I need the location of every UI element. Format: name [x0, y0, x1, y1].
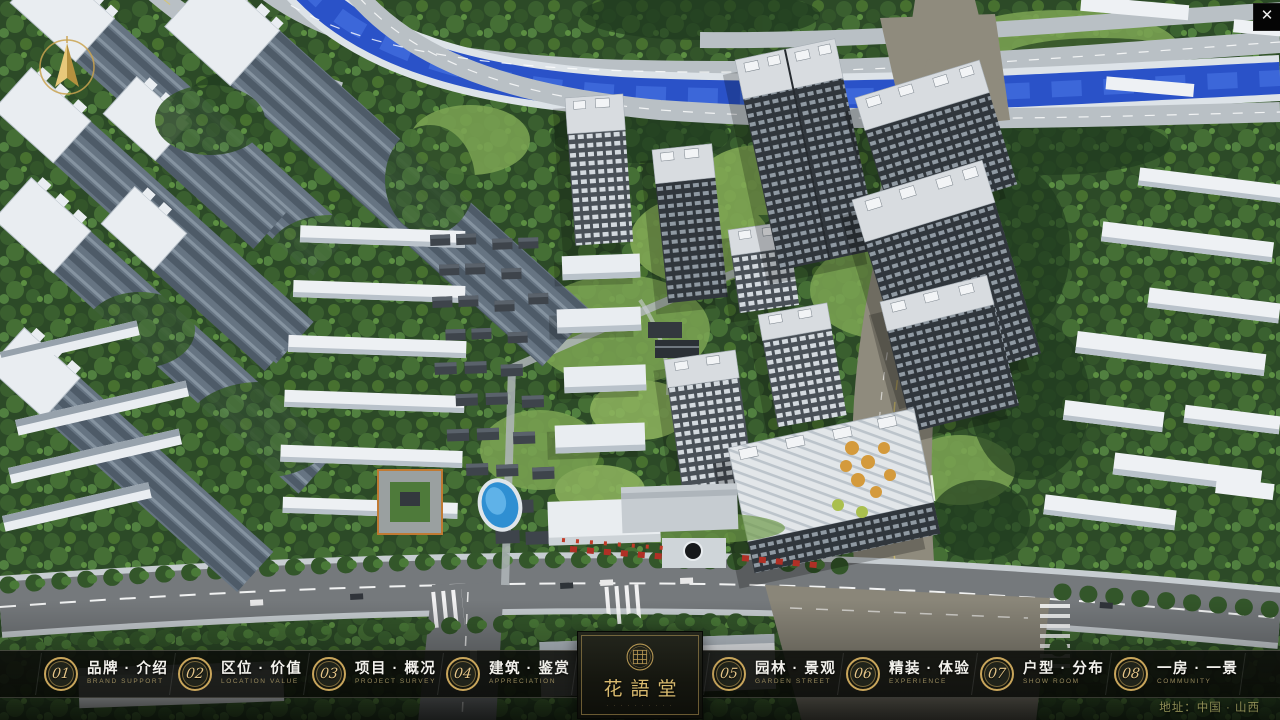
menu-divider [703, 653, 710, 695]
nav-item-3-label-zh: 项目 · 概况 [355, 662, 436, 677]
nav-item-2-label-zh: 区位 · 价值 [221, 662, 302, 677]
nav-item-architecture[interactable]: 04 建筑 · 鉴赏 APPRECIATION [446, 651, 576, 697]
nav-item-interior-experience[interactable]: 06 精装 · 体验 EXPERIENCE [846, 651, 976, 697]
menu-divider [35, 653, 42, 695]
presentation-window: ✕ 01 品牌 · 介绍 BRAND SUPPORT 02 区位 · 价值 LO… [0, 0, 1280, 720]
project-logo-panel: 花語堂 · · · · · · · · · · [578, 632, 702, 718]
nav-item-5-label-en: GARDEN STREET [755, 679, 836, 686]
nav-item-6-label-en: EXPERIENCE [889, 679, 970, 686]
project-logo-title: 花語堂 [595, 674, 684, 701]
nav-item-7-label-zh: 户型 · 分布 [1023, 662, 1104, 677]
nav-item-8-badge: 08 [1114, 657, 1148, 691]
project-address: 地址：中国 · 山西 [1040, 699, 1260, 715]
nav-item-unit-distribution[interactable]: 07 户型 · 分布 SHOW ROOM [980, 651, 1110, 697]
close-icon[interactable]: ✕ [1253, 3, 1280, 31]
nav-item-1-label-zh: 品牌 · 介绍 [87, 662, 168, 677]
project-logo-frame: 花語堂 · · · · · · · · · · [581, 635, 699, 715]
nav-item-3-badge: 03 [312, 657, 346, 691]
compass-north-icon [36, 34, 98, 96]
nav-item-garden-landscape[interactable]: 05 园林 · 景观 GARDEN STREET [712, 651, 842, 697]
nav-item-7-badge: 07 [980, 657, 1014, 691]
nav-item-1-label-en: BRAND SUPPORT [87, 679, 168, 686]
nav-item-room-view[interactable]: 08 一房 · 一景 COMMUNITY [1114, 651, 1244, 697]
nav-item-5-label-zh: 园林 · 景观 [755, 662, 836, 677]
project-logo-tagline: · · · · · · · · · · [606, 703, 673, 709]
brand-seal-icon [625, 642, 655, 672]
nav-item-2-label-en: LOCATION VALUE [221, 679, 302, 686]
nav-item-7-label-en: SHOW ROOM [1023, 679, 1104, 686]
nav-item-location-value[interactable]: 02 区位 · 价值 LOCATION VALUE [178, 651, 308, 697]
nav-item-6-badge: 06 [846, 657, 880, 691]
nav-item-project-survey[interactable]: 03 项目 · 概况 PROJECT SURVEY [312, 651, 442, 697]
nav-item-8-label-zh: 一房 · 一景 [1157, 662, 1238, 677]
nav-item-4-label-zh: 建筑 · 鉴赏 [489, 662, 570, 677]
nav-item-2-badge: 02 [178, 657, 212, 691]
nav-item-5-badge: 05 [712, 657, 746, 691]
nav-item-brand-intro[interactable]: 01 品牌 · 介绍 BRAND SUPPORT [44, 651, 174, 697]
nav-item-4-badge: 04 [446, 657, 480, 691]
nav-item-3-label-en: PROJECT SURVEY [355, 679, 436, 686]
nav-item-8-label-en: COMMUNITY [1157, 679, 1238, 686]
nav-item-1-badge: 01 [44, 657, 78, 691]
nav-item-4-label-en: APPRECIATION [489, 679, 570, 686]
nav-item-6-label-zh: 精装 · 体验 [889, 662, 970, 677]
masterplan-aerial-render [0, 0, 1280, 720]
